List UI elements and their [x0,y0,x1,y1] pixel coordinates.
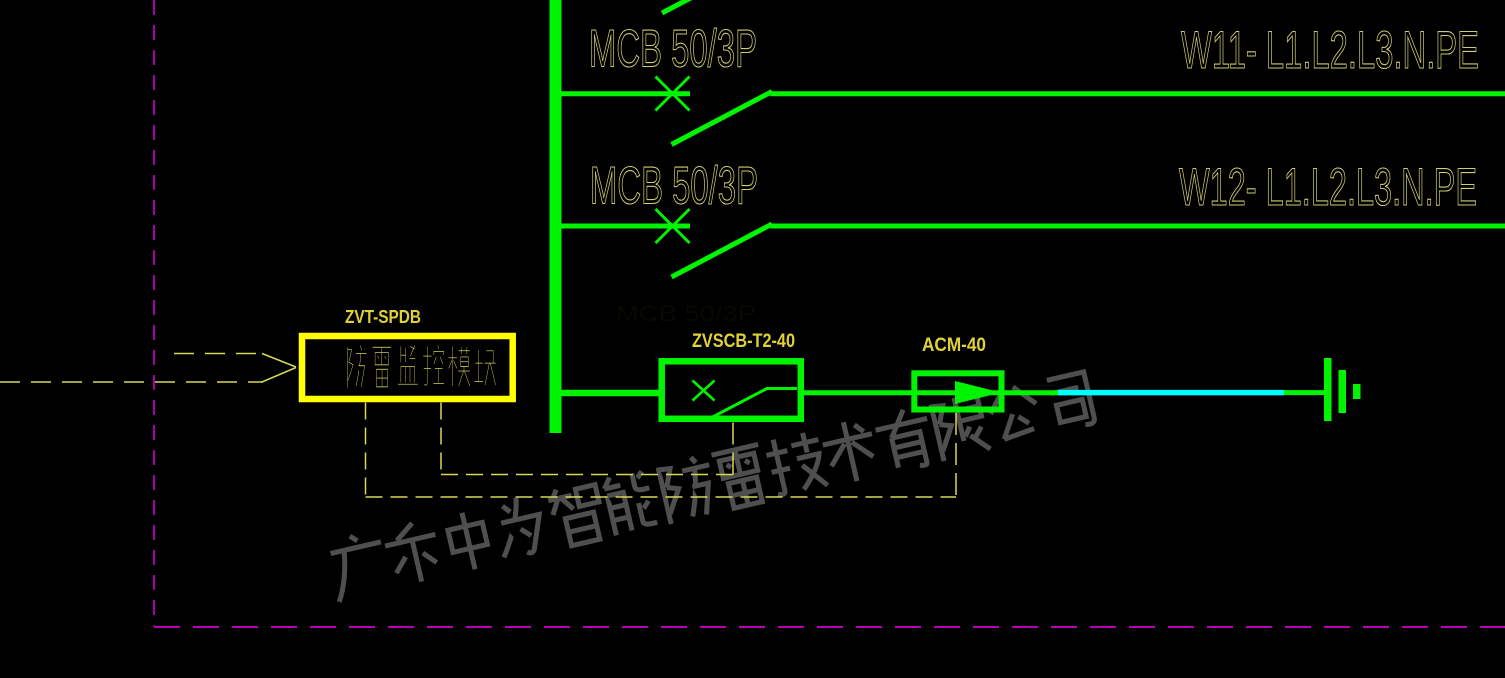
svg-text:ZVT-SPDB: ZVT-SPDB [345,307,421,327]
svg-text:ACM-40: ACM-40 [922,335,986,356]
svg-text:ZVSCB-T2-40: ZVSCB-T2-40 [692,331,795,352]
svg-text:MCB 50/3P: MCB 50/3P [616,301,756,326]
svg-text:MCB 50/3P: MCB 50/3P [590,157,758,216]
svg-text:W11- L1.L2.L3.N.PE: W11- L1.L2.L3.N.PE [1181,21,1479,80]
svg-text:W12- L1.L2.L3.N.PE: W12- L1.L2.L3.N.PE [1179,158,1477,217]
svg-text:MCB 50/3P: MCB 50/3P [589,20,757,79]
